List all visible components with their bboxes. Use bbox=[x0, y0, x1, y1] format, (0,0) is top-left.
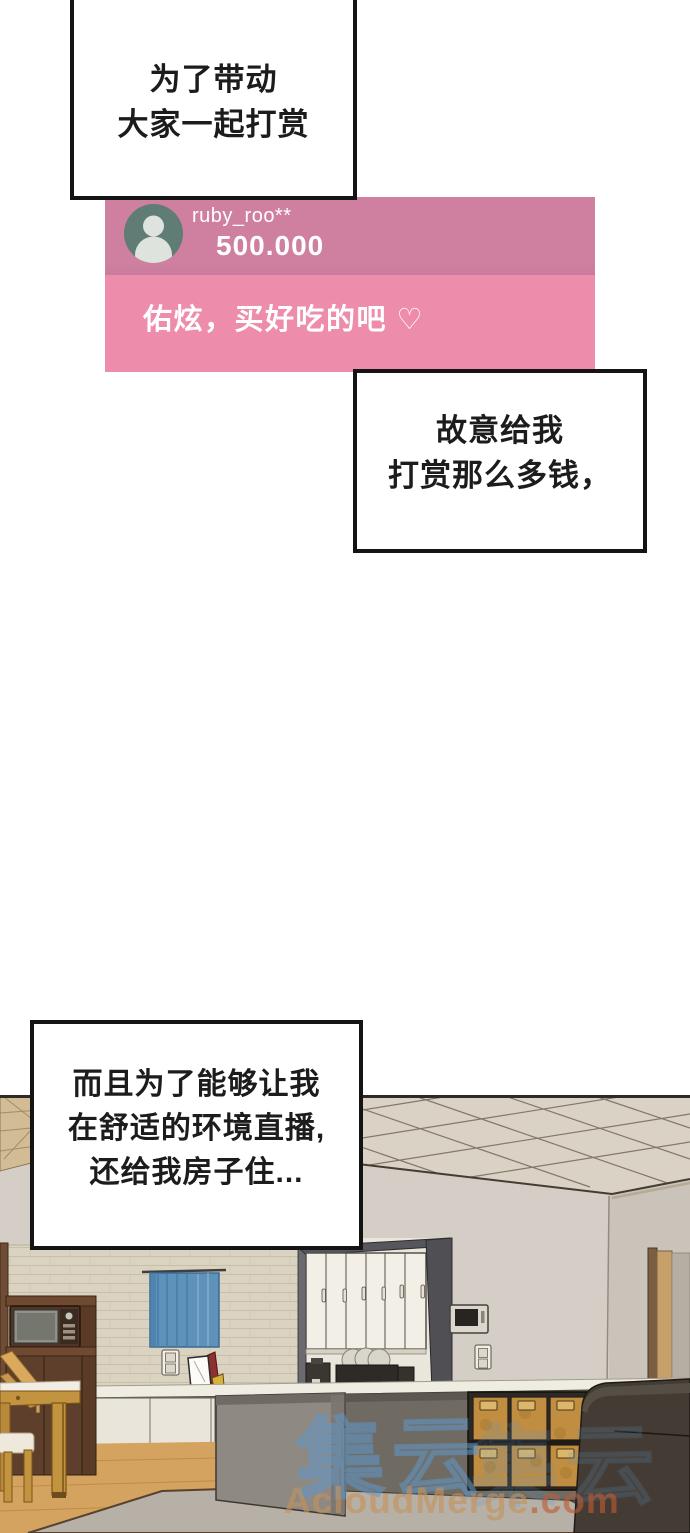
site-watermark: AcloudMerge.com bbox=[284, 1480, 620, 1522]
intercom-panel bbox=[450, 1305, 488, 1333]
bubble-1-line-1: 为了带动 bbox=[150, 57, 278, 102]
site-watermark-name: AcloudMerge bbox=[284, 1480, 529, 1521]
avatar bbox=[124, 204, 183, 263]
kitchen-alcove bbox=[298, 1238, 452, 1391]
dish-rack bbox=[336, 1348, 398, 1387]
bubble-3-line-1: 而且为了能够让我 bbox=[73, 1063, 321, 1107]
user-avatar-icon bbox=[124, 204, 183, 263]
bubble-3-line-2: 在舒适的环境直播, bbox=[68, 1107, 325, 1151]
donor-username: ruby_roo** bbox=[192, 205, 292, 228]
speech-bubble-2: 故意给我 打赏那么多钱， bbox=[353, 369, 647, 553]
blue-curtain bbox=[142, 1270, 226, 1347]
donation-message: 佑炫，买好吃的吧 ♡ bbox=[143, 296, 424, 338]
speech-bubble-1: 为了带动 大家一起打赏 bbox=[70, 0, 357, 200]
door-frame bbox=[648, 1248, 690, 1390]
speech-bubble-3: 而且为了能够让我 在舒适的环境直播, 还给我房子住... bbox=[30, 1020, 363, 1250]
bubble-2-line-2: 打赏那么多钱， bbox=[388, 453, 612, 498]
site-watermark-tld: .com bbox=[529, 1480, 619, 1521]
donation-card: ruby_roo** 500.000 佑炫，买好吃的吧 ♡ bbox=[105, 197, 595, 372]
bubble-3-line-3: 还给我房子住... bbox=[89, 1151, 303, 1195]
microwave bbox=[10, 1306, 80, 1347]
bubble-2-line-1: 故意给我 bbox=[436, 408, 564, 453]
donation-amount: 500.000 bbox=[216, 230, 324, 262]
wall-outlet-right bbox=[475, 1345, 491, 1369]
wall-outlet-left bbox=[162, 1350, 179, 1375]
bubble-1-line-2: 大家一起打赏 bbox=[118, 102, 310, 147]
